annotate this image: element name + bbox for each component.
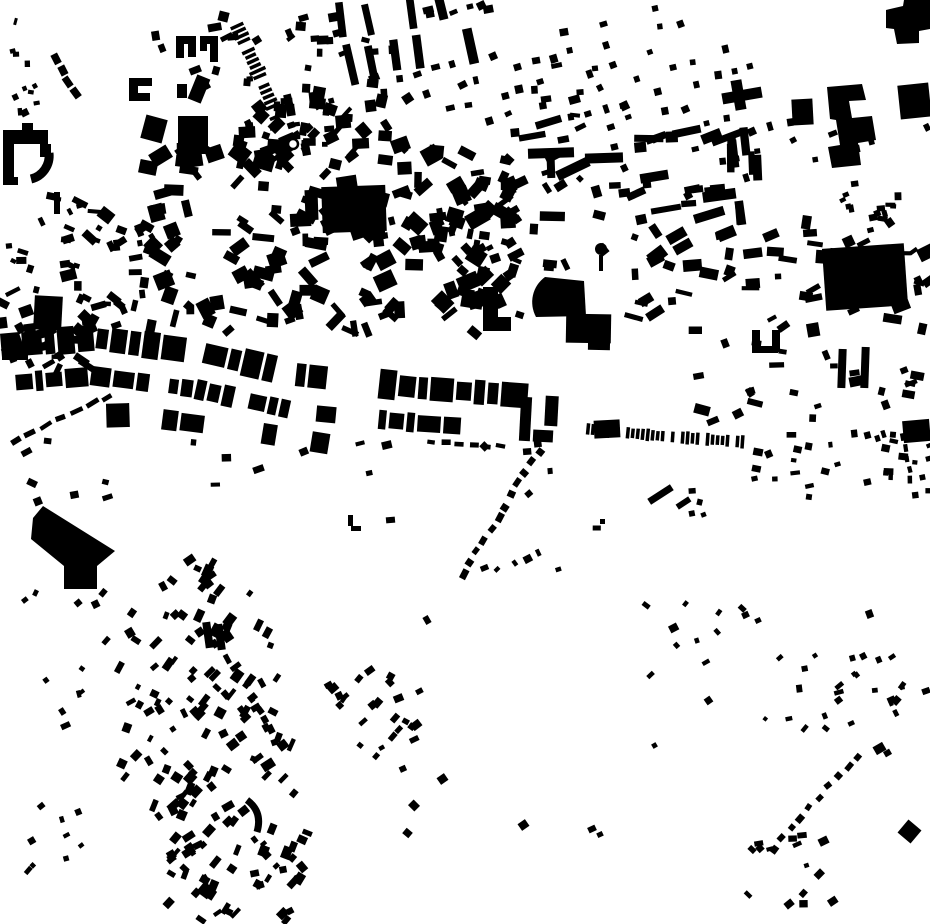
building [812, 653, 818, 659]
building [807, 240, 823, 247]
building [806, 322, 820, 337]
building [754, 617, 762, 624]
building [381, 440, 393, 450]
building [809, 414, 816, 422]
building [910, 371, 925, 382]
building [139, 277, 149, 289]
building [783, 898, 794, 909]
building [645, 304, 665, 321]
building [129, 254, 143, 262]
building [801, 665, 808, 672]
lollipop-head [595, 243, 607, 255]
building [70, 406, 84, 416]
building [721, 44, 729, 53]
sw-arc-road [247, 800, 259, 832]
building [427, 439, 435, 444]
building [106, 403, 130, 428]
building [822, 243, 908, 311]
building [429, 377, 454, 402]
building [57, 64, 68, 76]
building [487, 382, 499, 404]
building [610, 143, 619, 151]
building [790, 470, 800, 475]
building [695, 432, 699, 444]
building [883, 313, 903, 325]
building [250, 835, 258, 843]
building [158, 581, 168, 592]
building [390, 136, 411, 155]
building [59, 816, 65, 823]
building [149, 689, 159, 699]
building [202, 823, 216, 837]
building [193, 608, 205, 623]
building [16, 257, 26, 264]
building [504, 110, 512, 117]
building [218, 728, 229, 738]
building [209, 855, 222, 869]
building [500, 503, 510, 513]
building [415, 687, 424, 695]
building [585, 152, 623, 163]
building [743, 247, 763, 259]
building [380, 89, 387, 97]
building [878, 387, 886, 396]
building [63, 832, 71, 839]
building [703, 120, 710, 127]
building [892, 709, 899, 717]
building [715, 609, 722, 617]
n-shape-1 [176, 36, 196, 58]
building [685, 431, 689, 444]
building [769, 845, 779, 855]
building [169, 831, 182, 844]
building [268, 289, 283, 307]
building [413, 70, 423, 78]
building [26, 264, 34, 273]
building [137, 240, 143, 247]
building [775, 273, 782, 279]
building [392, 237, 411, 256]
building [518, 819, 530, 831]
figure-ground-map [0, 0, 930, 924]
building [401, 92, 414, 105]
building [917, 323, 927, 336]
building [625, 114, 632, 121]
building [17, 108, 22, 116]
building [693, 206, 725, 224]
building [536, 78, 544, 85]
building [535, 115, 562, 130]
building [356, 742, 363, 749]
building [164, 184, 184, 196]
building [15, 374, 33, 391]
building [441, 157, 457, 169]
building [351, 526, 361, 531]
building [271, 205, 282, 214]
building [166, 869, 176, 878]
building [3, 130, 48, 144]
building [576, 175, 584, 183]
building [693, 372, 704, 380]
building [278, 399, 291, 419]
building [290, 226, 301, 236]
building [233, 844, 242, 856]
building [642, 179, 651, 188]
building [673, 642, 680, 650]
building [252, 233, 274, 242]
building [626, 427, 631, 439]
building [606, 123, 615, 131]
building [529, 224, 538, 235]
building [646, 49, 653, 56]
building [889, 438, 898, 444]
building [480, 564, 489, 572]
building [596, 831, 604, 838]
building [495, 512, 505, 523]
building [115, 225, 127, 235]
building [69, 86, 81, 99]
building [6, 243, 13, 249]
building [398, 375, 417, 398]
building [700, 512, 706, 518]
building [217, 11, 229, 23]
building [150, 662, 159, 671]
building [114, 661, 125, 674]
building [865, 609, 874, 619]
building [526, 456, 536, 466]
building [310, 35, 319, 42]
building [0, 296, 10, 310]
building [689, 326, 702, 334]
building [296, 834, 308, 845]
building [162, 764, 172, 774]
building [885, 203, 895, 207]
building [720, 436, 724, 445]
building [600, 519, 605, 524]
building [633, 75, 640, 83]
building [33, 286, 40, 294]
building [719, 157, 726, 165]
building [867, 227, 874, 233]
building [543, 259, 558, 268]
building [170, 609, 181, 620]
street-rows [0, 325, 529, 454]
building [281, 98, 293, 105]
building [804, 803, 812, 811]
building [372, 752, 380, 760]
building [631, 268, 638, 280]
building [141, 331, 161, 360]
building [466, 3, 474, 10]
building [194, 379, 208, 401]
building [797, 832, 807, 839]
building [815, 794, 824, 803]
building [429, 145, 445, 159]
building [302, 829, 313, 837]
building [279, 866, 287, 874]
building [191, 439, 197, 446]
building [479, 231, 490, 240]
building [54, 192, 60, 214]
building [101, 301, 111, 306]
building [361, 322, 373, 338]
building [207, 22, 222, 32]
building [422, 615, 431, 625]
building [44, 438, 52, 445]
building [647, 484, 673, 505]
building [624, 312, 643, 322]
building [405, 0, 418, 29]
building [374, 249, 397, 271]
building [90, 366, 112, 388]
building [902, 419, 930, 443]
building [278, 773, 289, 784]
building [702, 659, 711, 667]
building [448, 60, 456, 69]
building [298, 447, 309, 457]
building [609, 61, 618, 70]
building [354, 674, 363, 684]
building [903, 444, 908, 452]
building [377, 154, 393, 165]
building [803, 229, 817, 237]
building [710, 184, 725, 192]
building [533, 429, 554, 442]
building [154, 811, 163, 821]
building [405, 259, 423, 271]
building [714, 71, 722, 80]
building [45, 372, 63, 388]
building [0, 317, 8, 330]
building [640, 429, 645, 440]
building [704, 696, 714, 706]
n-shape-2 [200, 36, 218, 62]
building [464, 102, 472, 108]
building [881, 399, 891, 410]
building [85, 397, 99, 408]
building [307, 364, 328, 389]
building [389, 39, 401, 71]
building [636, 428, 640, 439]
building [170, 771, 183, 784]
building [212, 229, 231, 236]
building [859, 652, 868, 661]
building [574, 122, 586, 131]
building [747, 398, 763, 408]
building [10, 258, 17, 264]
map-viewport [0, 0, 930, 924]
building [872, 688, 878, 693]
building [160, 747, 169, 756]
building [510, 128, 520, 137]
building [751, 476, 758, 482]
building [557, 135, 569, 144]
building [894, 192, 901, 200]
building [715, 435, 719, 445]
building [874, 435, 881, 443]
building [246, 590, 253, 598]
building [814, 868, 826, 880]
building [388, 216, 396, 225]
building [267, 313, 279, 328]
building [222, 454, 232, 462]
building [96, 206, 115, 225]
building [834, 771, 844, 781]
building [464, 289, 475, 297]
building [180, 708, 188, 718]
building [683, 259, 703, 272]
building [821, 712, 828, 719]
building [273, 673, 282, 683]
building [55, 414, 66, 422]
building [355, 440, 365, 446]
building [456, 382, 472, 401]
building [762, 228, 780, 242]
building [149, 636, 162, 650]
building [519, 397, 532, 442]
building [50, 52, 61, 65]
building [599, 255, 603, 271]
building [258, 181, 269, 191]
building [27, 836, 36, 845]
building [39, 420, 52, 431]
building [222, 324, 235, 336]
building [734, 200, 746, 225]
building [342, 44, 359, 86]
building [723, 115, 730, 122]
building [671, 431, 675, 442]
building [302, 234, 308, 247]
building [140, 115, 167, 144]
building [91, 599, 101, 609]
building [788, 835, 797, 842]
building [223, 653, 232, 664]
building [399, 765, 407, 773]
building [129, 269, 142, 275]
building [693, 403, 711, 416]
building [511, 559, 518, 566]
building [751, 465, 761, 473]
building [328, 158, 342, 171]
e-block [129, 78, 152, 101]
building [535, 549, 542, 557]
building [602, 41, 610, 50]
building [651, 204, 682, 215]
building [183, 554, 197, 567]
building [778, 255, 797, 264]
building [22, 123, 33, 131]
building [842, 235, 856, 249]
building [267, 396, 279, 415]
building [437, 773, 449, 785]
building [725, 435, 729, 447]
building [388, 412, 404, 429]
building [111, 321, 122, 330]
building [767, 315, 777, 323]
building [221, 800, 235, 812]
building [559, 28, 569, 37]
building [267, 707, 278, 717]
building [147, 735, 154, 743]
building [144, 755, 154, 766]
building [82, 319, 88, 326]
building [500, 216, 516, 228]
building [459, 568, 470, 580]
building [471, 546, 480, 555]
building [95, 224, 102, 231]
building [260, 757, 276, 772]
building [740, 435, 744, 449]
building [64, 367, 88, 388]
building [568, 94, 581, 105]
building [592, 65, 599, 71]
building [752, 346, 778, 353]
building [394, 301, 405, 318]
building [145, 319, 156, 333]
building [457, 80, 468, 90]
building [251, 35, 262, 45]
building [532, 57, 541, 65]
building [710, 434, 714, 444]
building [21, 596, 29, 604]
building [198, 694, 211, 708]
building [662, 260, 675, 272]
building [130, 749, 143, 762]
building [120, 772, 130, 782]
building [380, 119, 392, 133]
building [24, 866, 33, 875]
building [233, 134, 245, 147]
building [796, 684, 803, 692]
building [464, 558, 474, 568]
building [735, 436, 739, 448]
building [785, 716, 793, 722]
building [63, 224, 75, 233]
building [806, 283, 821, 295]
building [704, 187, 712, 195]
building [518, 131, 546, 142]
building [791, 458, 797, 463]
building [393, 693, 405, 703]
building [817, 835, 829, 846]
building [646, 671, 655, 679]
building [486, 244, 494, 251]
building [26, 478, 38, 488]
building [185, 272, 196, 280]
building [18, 304, 34, 319]
building [688, 510, 695, 517]
building [253, 619, 264, 633]
building [396, 75, 403, 83]
building [650, 430, 655, 441]
building [806, 494, 813, 501]
building [185, 635, 196, 645]
building [143, 706, 155, 717]
building [535, 447, 545, 457]
building [168, 379, 179, 395]
building [193, 564, 202, 572]
building [470, 442, 479, 447]
building [326, 37, 333, 44]
building [919, 474, 926, 481]
building [925, 455, 930, 462]
building [63, 855, 70, 861]
building [926, 442, 930, 449]
building [555, 566, 562, 572]
building [366, 470, 373, 476]
building [237, 804, 250, 817]
building [834, 696, 843, 705]
